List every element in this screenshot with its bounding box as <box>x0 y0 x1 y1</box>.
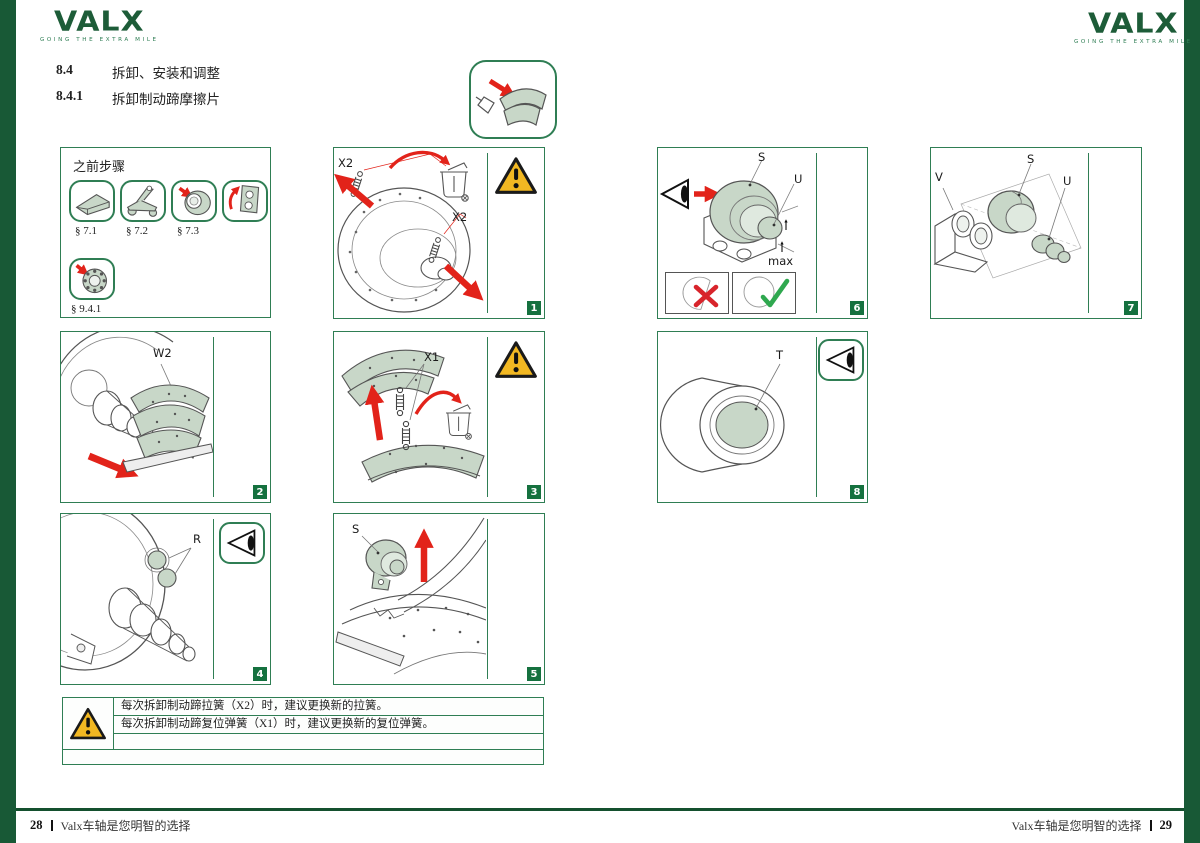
panel-divider <box>487 337 489 497</box>
page-number-right: 29 <box>1160 818 1173 833</box>
ref-7-2: § 7.2 <box>126 225 148 237</box>
brake-shoe-section-icon <box>469 60 557 139</box>
wheel-icon <box>171 180 217 222</box>
ref-9-4-1: § 9.4.1 <box>71 303 101 315</box>
bracket-label-v: V <box>935 170 943 184</box>
spring-label-x2-top: X2 <box>338 156 353 170</box>
correct-shape-box <box>732 272 796 314</box>
previous-steps-title: 之前步骤 <box>73 156 125 175</box>
subsection-title: 拆卸制动蹄摩擦片 <box>112 88 220 108</box>
step-panel-2: W2 2 <box>60 331 271 503</box>
trash-bin-icon <box>440 163 468 201</box>
footer-slogan-left: Valx车轴是您明智的选择 <box>61 817 191 834</box>
step-number-badge: 3 <box>527 485 541 499</box>
valx-logo-left: VALX GOING THE EXTRA MILE <box>40 8 159 43</box>
page-edge-bar-right <box>1184 0 1200 843</box>
footer-rule <box>16 808 1184 811</box>
previous-steps-panel: 之前步骤 § 7.1 § 7.2 <box>60 147 271 318</box>
shoe-label-w2: W2 <box>153 346 172 360</box>
step-panel-4: R 4 <box>60 513 271 685</box>
panel-divider <box>487 153 489 313</box>
valx-logo-tagline: GOING THE EXTRA MILE <box>40 37 159 43</box>
step-panel-3: X1 3 <box>333 331 545 503</box>
pin-label-u: U <box>1063 174 1071 188</box>
warning-notes-box: 每次拆卸制动蹄拉簧（X2）时，建议更换新的拉簧。 每次拆卸制动蹄复位弹簧（X1）… <box>62 697 544 765</box>
panel-divider <box>816 153 818 313</box>
footer-separator <box>1150 820 1152 831</box>
warning-note-1: 每次拆卸制动蹄拉簧（X2）时，建议更换新的拉簧。 <box>113 698 543 715</box>
step-panel-8: T 8 <box>657 331 868 503</box>
hub-icon <box>69 258 115 300</box>
step-panel-1: X2 X2 1 <box>333 147 545 319</box>
step-number-badge: 2 <box>253 485 267 499</box>
roller-bore-check-illustration <box>658 332 813 500</box>
inspect-eye-icon <box>662 180 688 208</box>
roller-label-s: S <box>352 522 359 536</box>
panel-divider <box>213 337 215 497</box>
page-edge-bar-left <box>0 0 16 843</box>
max-wear-label: max <box>768 254 793 268</box>
manual-spread: VALX GOING THE EXTRA MILE VALX GOING THE… <box>0 0 1200 843</box>
trash-bin-icon <box>446 405 471 439</box>
inspect-eye-icon <box>818 339 864 381</box>
step-number-badge: 5 <box>527 667 541 681</box>
brake-drum-springs-illustration <box>334 148 486 316</box>
ref-7-1: § 7.1 <box>75 225 97 237</box>
section-title: 拆卸、安装和调整 <box>112 62 220 82</box>
panel-divider <box>816 337 818 497</box>
bore-label-t: T <box>776 348 783 362</box>
roller-label-s: S <box>1027 152 1034 166</box>
step-number-badge: 8 <box>850 485 864 499</box>
footer-left: 28 Valx车轴是您明智的选择 <box>30 817 191 834</box>
brake-shoe-removal-illustration <box>61 332 213 500</box>
spring-label-x1: X1 <box>424 350 439 364</box>
panel-divider <box>213 519 215 679</box>
warning-triangle-icon <box>63 698 114 749</box>
warning-note-2: 每次拆卸制动蹄复位弹簧（X1）时，建议更换新的复位弹簧。 <box>113 716 543 733</box>
return-spring-removal-illustration <box>334 332 486 500</box>
valx-logo-right: VALX GOING THE EXTRA MILE <box>1074 10 1193 45</box>
wrong-shape-box <box>665 272 729 314</box>
step-number-badge: 4 <box>253 667 267 681</box>
warning-triangle-icon <box>494 156 538 196</box>
roller-location-illustration <box>61 514 213 682</box>
step-number-badge: 1 <box>527 301 541 315</box>
ref-7-3: § 7.3 <box>177 225 199 237</box>
step-panel-7: V S U 7 <box>930 147 1142 319</box>
step-number-badge: 7 <box>1124 301 1138 315</box>
pin-label-u: U <box>794 172 802 186</box>
valx-logo-text: VALX <box>40 9 159 35</box>
panel-divider <box>1088 153 1090 313</box>
step-panel-5: S 5 <box>333 513 545 685</box>
trolley-jack-icon <box>120 180 166 222</box>
inspect-eye-icon <box>219 522 265 564</box>
step-panel-6: S U max 6 <box>657 147 868 319</box>
cross-icon <box>696 287 716 305</box>
wheel-chock-icon <box>69 180 115 222</box>
footer-right: Valx车轴是您明智的选择 29 <box>1012 817 1173 834</box>
roller-label-s: S <box>758 150 765 164</box>
check-icon <box>763 281 787 305</box>
roller-removal-illustration <box>334 514 486 682</box>
spring-label-x2-bottom: X2 <box>452 210 467 224</box>
panel-divider <box>487 519 489 679</box>
warning-triangle-icon <box>494 340 538 380</box>
footer-separator <box>51 820 53 831</box>
brake-caliper-icon <box>222 180 268 222</box>
step-number-badge: 6 <box>850 301 864 315</box>
page-number-left: 28 <box>30 818 43 833</box>
section-number: 8.4 <box>56 62 73 78</box>
subsection-number: 8.4.1 <box>56 88 83 104</box>
footer-slogan-right: Valx车轴是您明智的选择 <box>1012 817 1142 834</box>
roller-label-r: R <box>193 532 201 546</box>
